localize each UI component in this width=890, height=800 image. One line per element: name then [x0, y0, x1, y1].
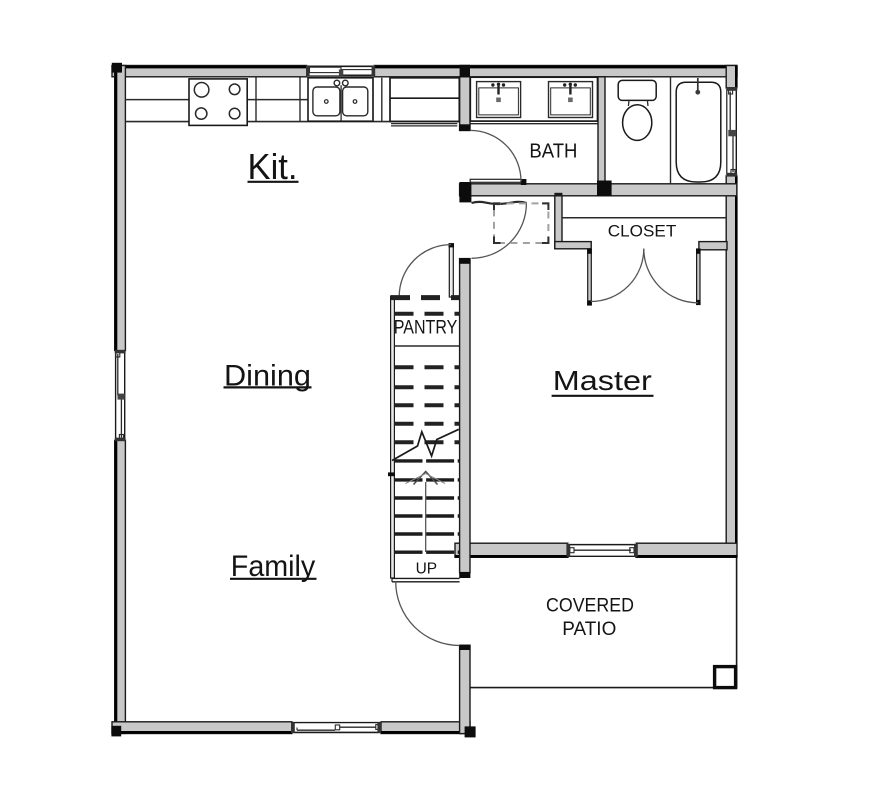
svg-text:UP: UP [416, 560, 438, 577]
svg-text:PATIO: PATIO [562, 618, 616, 640]
svg-text:COVERED: COVERED [546, 595, 634, 617]
svg-text:BATH: BATH [529, 140, 577, 162]
svg-text:Master: Master [553, 365, 652, 396]
svg-text:CLOSET: CLOSET [608, 223, 677, 241]
svg-text:PANTRY: PANTRY [394, 317, 458, 339]
